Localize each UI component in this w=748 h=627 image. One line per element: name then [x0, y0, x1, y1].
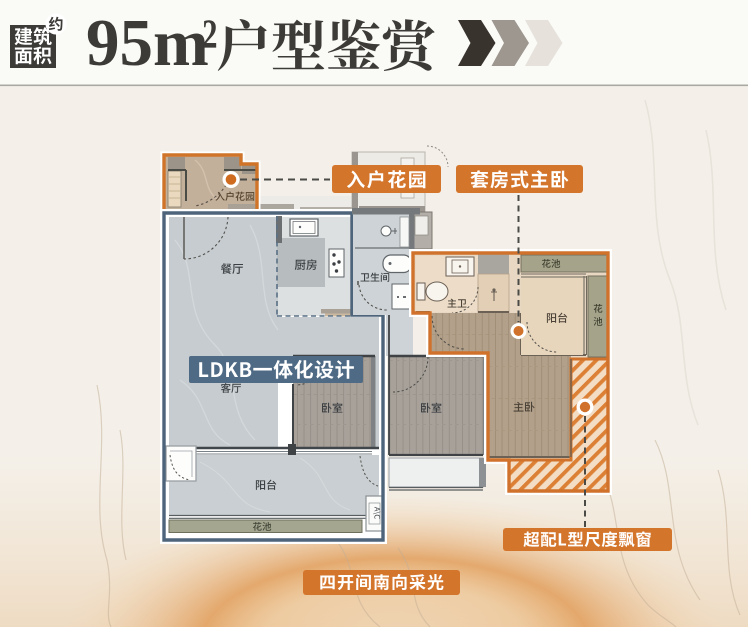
svg-text:95m: 95m	[86, 6, 209, 80]
svg-text:2: 2	[202, 11, 217, 56]
